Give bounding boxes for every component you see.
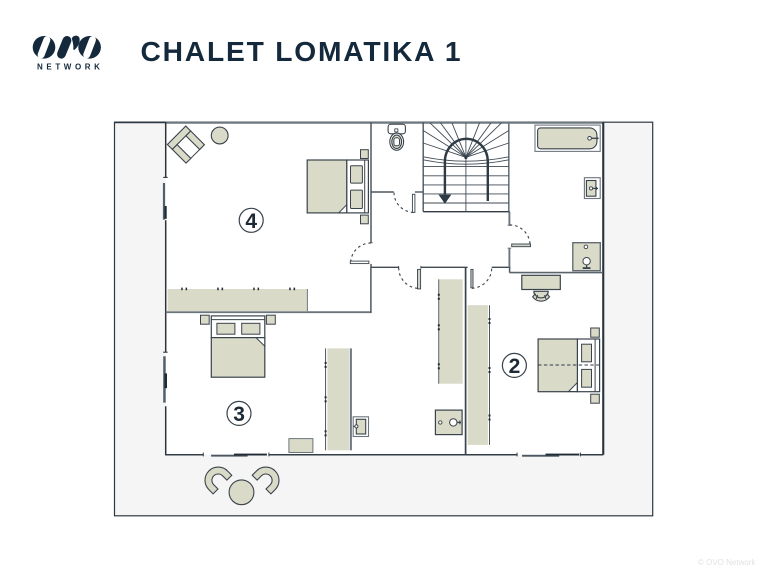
svg-text:NETWORK: NETWORK — [37, 62, 104, 71]
svg-text:© OVO Network: © OVO Network — [698, 558, 756, 567]
svg-text:3: 3 — [233, 403, 245, 426]
svg-text:CHALET LOMATIKA 1: CHALET LOMATIKA 1 — [141, 35, 463, 67]
svg-text:4: 4 — [245, 210, 257, 233]
svg-text:2: 2 — [509, 355, 521, 378]
